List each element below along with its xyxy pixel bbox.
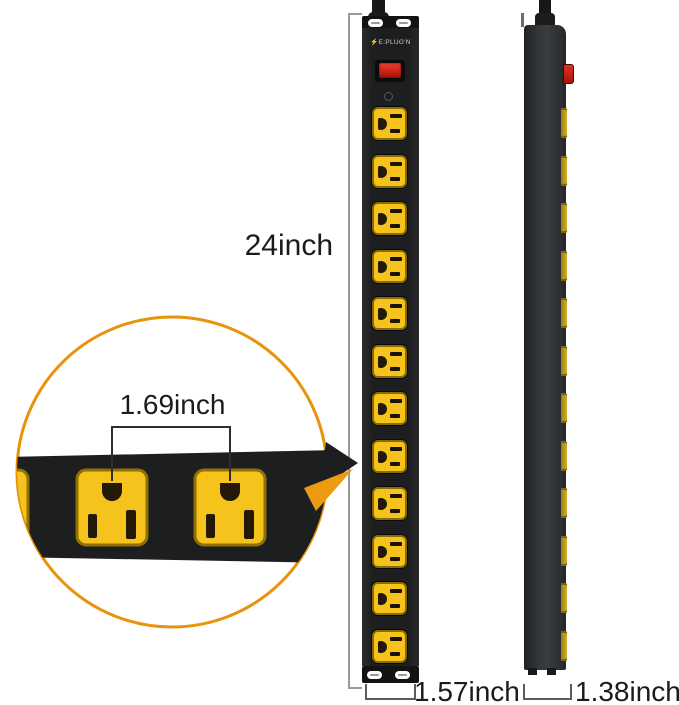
ground-hole-icon: [378, 118, 387, 130]
front-bottom-mounting-bracket: [362, 666, 419, 683]
outlet-spacing-callout: [0, 300, 370, 640]
ground-hole-icon: [378, 166, 387, 178]
outlet-slot: [390, 589, 402, 593]
outlet-slot: [88, 514, 97, 538]
outlet-side-tab: [561, 536, 567, 566]
outlet: [372, 582, 407, 615]
outlet-side-tab: [561, 251, 567, 281]
length-label: 24inch: [205, 229, 333, 263]
outlet-side-tab: [561, 441, 567, 471]
outlet: [372, 630, 407, 663]
outlet-slot: [390, 319, 400, 323]
screw-slot-icon: [368, 19, 383, 27]
front-width-label: 1.57inch: [414, 676, 520, 705]
outlet: [195, 470, 265, 545]
ground-hole-icon: [378, 593, 387, 605]
outlet-slot: [244, 510, 254, 539]
outlet: [372, 297, 407, 330]
outlet-spacing-label: 1.69inch: [95, 389, 250, 421]
outlet: [77, 470, 147, 545]
front-strip-body: ⚡E:PLUG'N: [362, 28, 419, 666]
outlet-side-tab: [561, 583, 567, 613]
outlet-slot: [390, 367, 400, 371]
outlet-side-tab: [561, 156, 567, 186]
front-width-bracket: [365, 684, 416, 700]
outlet-slot: [390, 257, 402, 261]
power-switch-rocker: [379, 63, 401, 78]
ground-hole-icon: [378, 403, 387, 415]
ground-hole-icon: [378, 213, 387, 225]
outlet-slot: [390, 177, 400, 181]
ground-hole-icon: [378, 261, 387, 273]
outlet-slot: [390, 494, 402, 498]
outlet-slot: [390, 557, 400, 561]
outlet: [372, 487, 407, 520]
outlet-slot: [126, 510, 136, 539]
dimension-tick: [348, 687, 362, 689]
outlet-slot: [390, 224, 400, 228]
outlet-slot: [390, 352, 402, 356]
outlet-side-tab: [561, 203, 567, 233]
ground-hole-icon: [378, 356, 387, 368]
ground-hole-icon: [378, 498, 387, 510]
outlet-slot: [390, 114, 402, 118]
outlet-side-tab: [561, 393, 567, 423]
outlet-side-tab: [561, 488, 567, 518]
outlet-slot: [390, 509, 400, 513]
ground-hole-icon: [378, 641, 387, 653]
outlet-side-tab: [561, 108, 567, 138]
outlet-slot: [390, 637, 402, 641]
outlet: [372, 107, 407, 140]
outlet: [372, 440, 407, 473]
side-strip-body: [524, 25, 566, 670]
side-depth-label: 1.38inch: [575, 676, 679, 705]
outlet-side-tab: [561, 298, 567, 328]
outlet-slot: [390, 447, 402, 451]
outlet-slot: [390, 604, 400, 608]
outlet-slot: [390, 129, 400, 133]
side-bracket-edge: [521, 13, 524, 27]
outlet-slot: [390, 652, 400, 656]
strip-band: [5, 450, 340, 563]
outlet-side-tab: [561, 346, 567, 376]
outlet: [372, 250, 407, 283]
outlet: [372, 535, 407, 568]
screw-slot-icon: [367, 671, 382, 679]
outlet-slot: [390, 304, 402, 308]
side-bracket-foot: [528, 668, 537, 675]
screw-slot-icon: [396, 19, 411, 27]
reset-indicator-icon: [384, 92, 393, 101]
outlet: [372, 392, 407, 425]
outlet-slot: [206, 514, 215, 538]
outlet-slot: [390, 209, 402, 213]
outlet-partial: [0, 470, 28, 545]
outlet-slot: [390, 542, 402, 546]
ground-hole-icon: [378, 546, 387, 558]
outlet-slot: [390, 162, 402, 166]
outlet: [372, 155, 407, 188]
ground-hole-icon: [378, 308, 387, 320]
outlet: [372, 345, 407, 378]
outlet-side-tab: [561, 631, 567, 661]
outlet-slot: [390, 414, 400, 418]
product-dimension-diagram: ⚡E:PLUG'N 24inch 1.57inch 1.38inch: [0, 0, 679, 705]
brand-logo: ⚡E:PLUG'N: [362, 38, 419, 48]
plug-icon: ⚡: [370, 39, 378, 46]
outlet-slot: [390, 272, 400, 276]
side-depth-bracket: [523, 684, 572, 700]
outlet: [372, 202, 407, 235]
screw-slot-icon: [395, 671, 410, 679]
power-switch: [375, 60, 405, 82]
dimension-tick: [348, 13, 362, 15]
side-bracket-foot: [547, 668, 556, 675]
side-power-switch: [563, 64, 574, 84]
outlet-slot: [390, 462, 400, 466]
ground-hole-icon: [378, 451, 387, 463]
outlet-slot: [390, 399, 402, 403]
